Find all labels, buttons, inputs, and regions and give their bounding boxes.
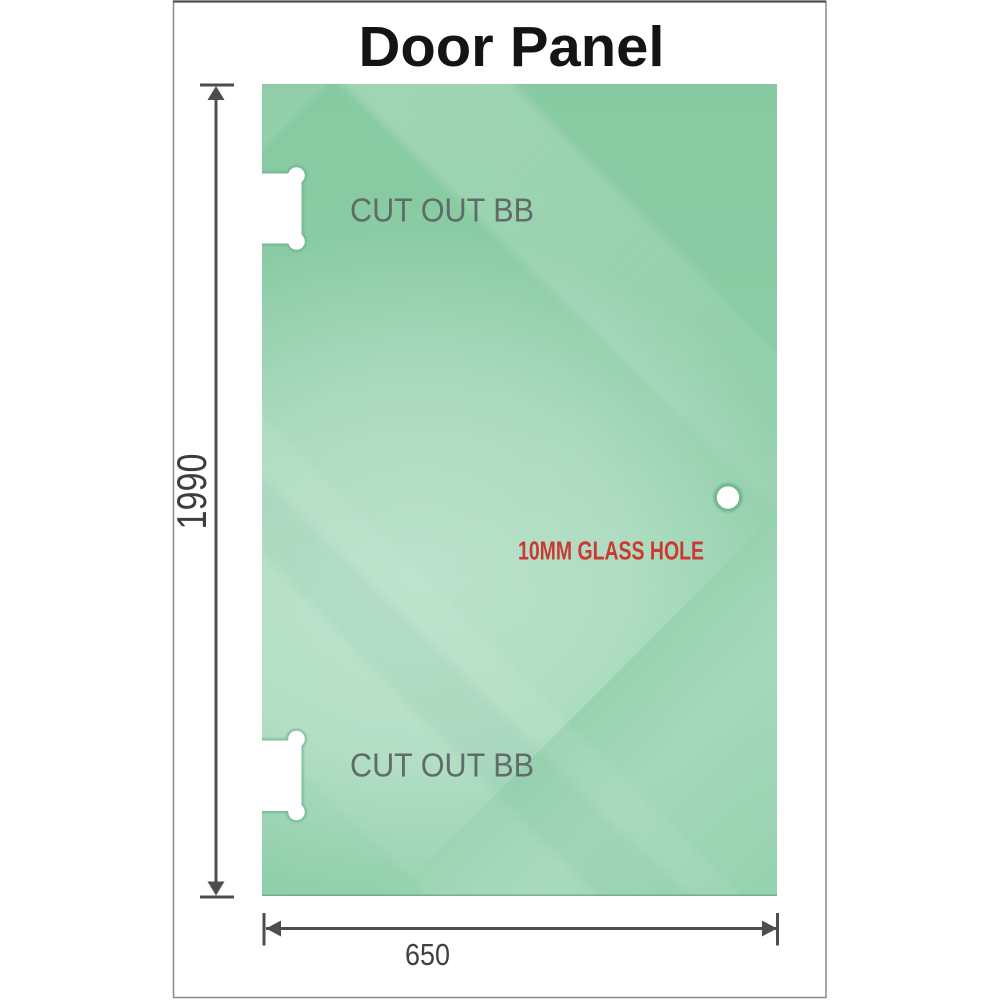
svg-text:10MM GLASS HOLE: 10MM GLASS HOLE [518, 536, 704, 566]
svg-text:CUT OUT BB: CUT OUT BB [350, 748, 534, 785]
svg-text:CUT OUT BB: CUT OUT BB [350, 193, 534, 230]
svg-text:Door Panel: Door Panel [359, 15, 665, 79]
svg-text:650: 650 [405, 937, 450, 972]
svg-text:1990: 1990 [168, 454, 215, 530]
